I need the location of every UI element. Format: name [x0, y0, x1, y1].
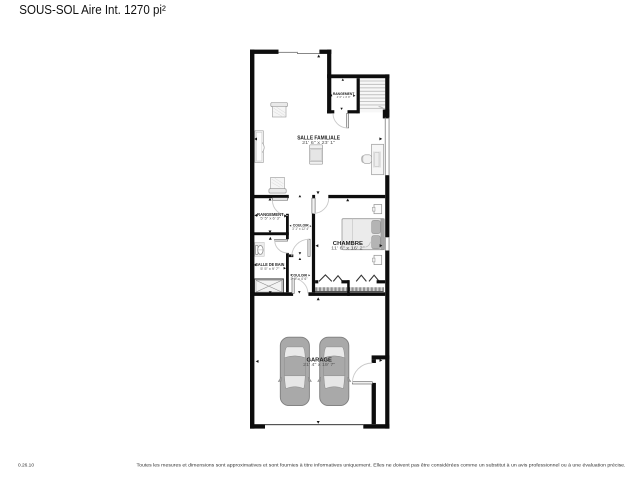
svg-text:0.26.10: 0.26.10	[18, 462, 34, 468]
svg-text:5' 5" x 9' 7": 5' 5" x 9' 7"	[260, 266, 280, 271]
svg-text:4' 0" x 4' 9": 4' 0" x 4' 9"	[337, 95, 351, 99]
svg-text:11' 6" x 16' 2": 11' 6" x 16' 2"	[331, 245, 365, 250]
svg-text:21' 4" x 19' 7": 21' 4" x 19' 7"	[303, 362, 335, 367]
svg-text:5' 5" x 6' 3": 5' 5" x 6' 3"	[260, 216, 281, 221]
svg-text:SOUS-SOL Aire Int. 1270 pi²: SOUS-SOL Aire Int. 1270 pi²	[19, 2, 166, 17]
svg-text:3' 1" x 12' 4": 3' 1" x 12' 4"	[292, 227, 310, 231]
svg-text:21' 6" x 23' 1": 21' 6" x 23' 1"	[302, 140, 335, 145]
svg-text:Toutes les mesures et dimensio: Toutes les mesures et dimensions sont ap…	[137, 462, 626, 468]
svg-text:3' 0" x 4' 6": 3' 0" x 4' 6"	[291, 277, 309, 281]
